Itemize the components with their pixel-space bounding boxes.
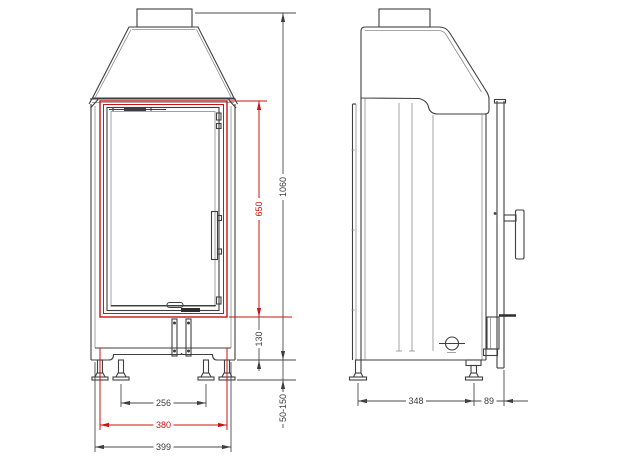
- front-view: [89, 9, 238, 380]
- technical-drawing-page: 650 1060 130 50-150 256: [0, 0, 624, 460]
- door-front: [107, 108, 222, 313]
- door-handle-front: [212, 212, 218, 260]
- dimension-label-leg-height-range: 50-150: [278, 394, 288, 422]
- dimension-label-front-offset: 89: [484, 396, 494, 406]
- dimension-label-total-width: 399: [156, 442, 171, 452]
- pedestal-front: [172, 319, 191, 356]
- red-frame: [100, 101, 227, 317]
- door-handle-side: [504, 210, 524, 259]
- base-front: [91, 348, 235, 360]
- dimension-label-frame-width: 380: [156, 420, 171, 430]
- dimension-label-total-height: 1060: [278, 177, 288, 197]
- front-frame-strip: [495, 100, 506, 369]
- dimension-leg-height-range: 50-150: [237, 360, 296, 428]
- hood-front: [89, 27, 238, 104]
- door-glass: [111, 112, 215, 307]
- hood-side: [361, 27, 489, 114]
- latch-bracket-side: [484, 316, 517, 356]
- legs-side: [350, 360, 483, 380]
- leg: [198, 360, 214, 380]
- dimension-label-inner-leg-spacing: 256: [156, 398, 171, 408]
- dimension-label-base-height: 130: [254, 331, 264, 346]
- dimension-label-depth: 348: [408, 396, 423, 406]
- dimension-base-height: 130: [254, 317, 264, 371]
- screw: [494, 212, 497, 215]
- door-frame: [107, 108, 219, 311]
- side-panels-front: [91, 104, 235, 360]
- adjustable-foot: [113, 377, 129, 380]
- leg: [350, 360, 367, 380]
- flue-collar-side: [379, 9, 430, 27]
- adjustable-foot: [466, 377, 483, 380]
- body-side: [352, 98, 525, 368]
- dimension-depth: 348: [358, 383, 474, 406]
- adjustable-foot: [198, 377, 214, 380]
- latch-plate: [181, 308, 200, 312]
- leg: [466, 360, 483, 380]
- adjustable-foot: [350, 377, 367, 380]
- side-view: [350, 9, 525, 380]
- technical-drawing-canvas: 650 1060 130 50-150 256: [0, 0, 624, 460]
- flue-collar-front: [137, 9, 192, 27]
- dimension-total-height: 1060: [195, 13, 296, 360]
- air-vent-slot: [124, 108, 146, 112]
- air-control-knob: [439, 337, 465, 353]
- dimension-label-door-height: 650: [254, 201, 264, 216]
- dimension-front-offset: 89: [474, 370, 528, 406]
- legs-front: [92, 360, 235, 380]
- leg: [113, 360, 129, 380]
- dimension-inner-leg-spacing: 256: [121, 384, 206, 408]
